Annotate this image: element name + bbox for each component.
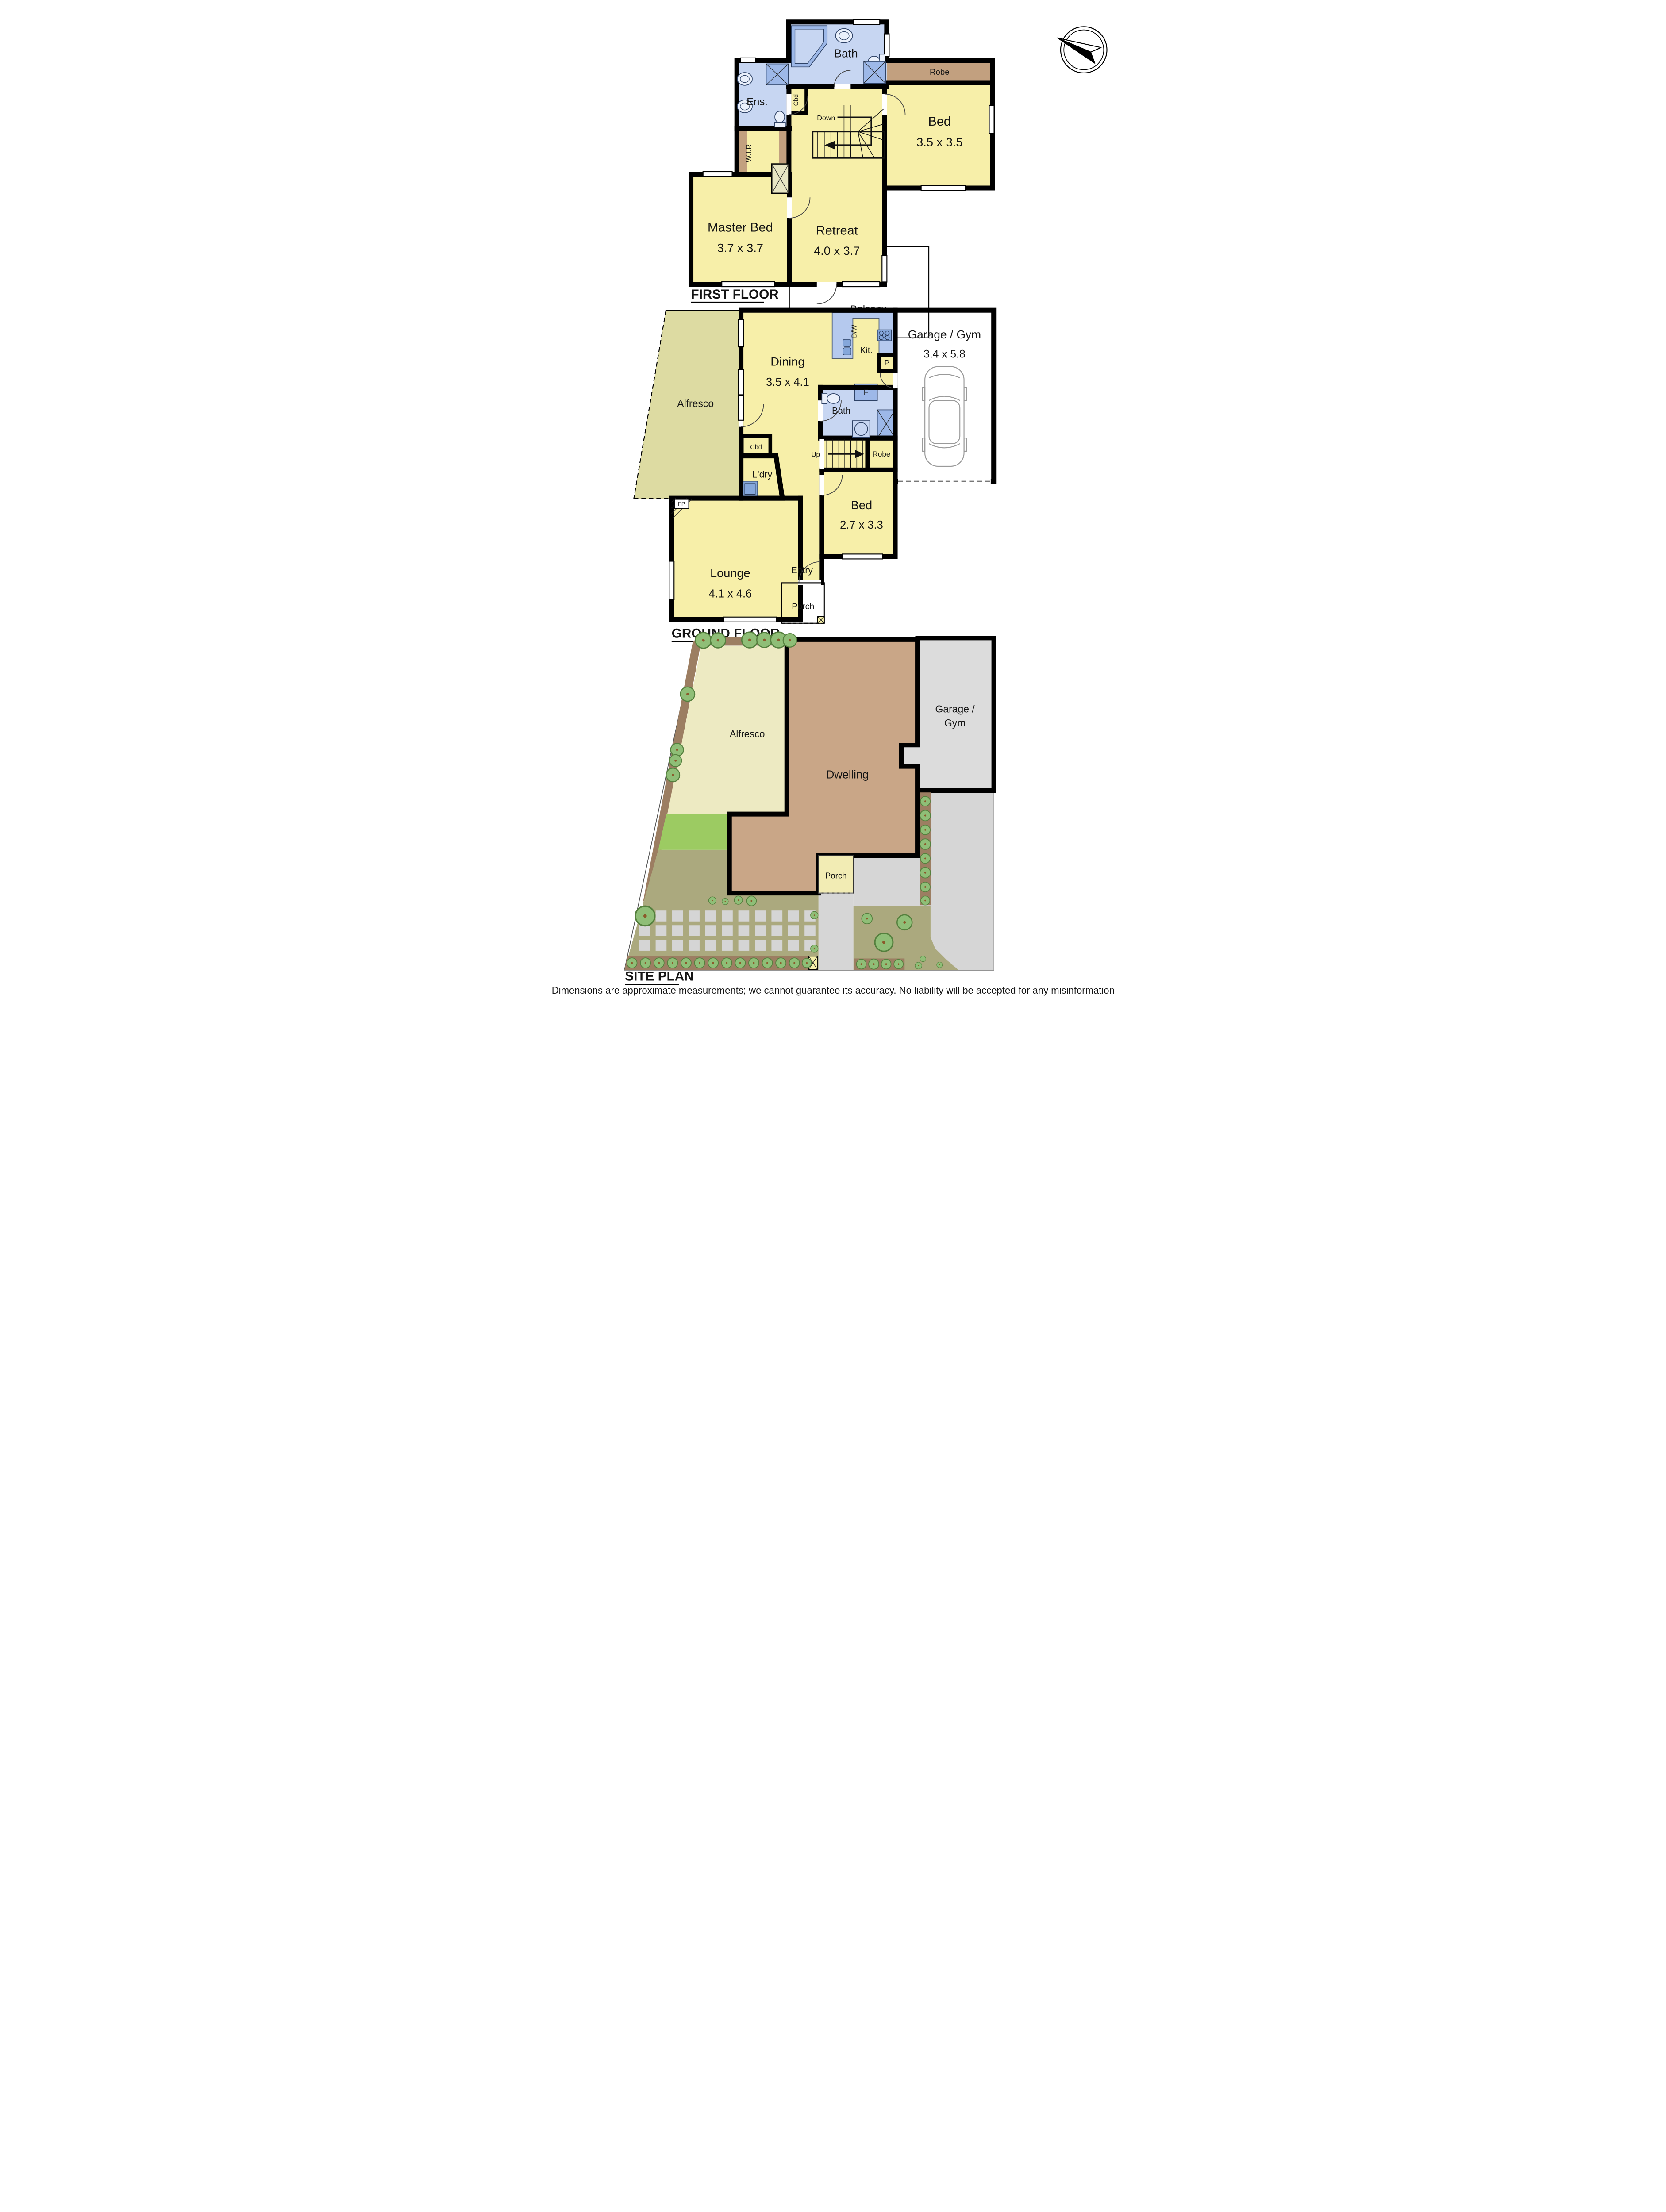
window xyxy=(739,369,743,395)
site-dwelling-label: Dwelling xyxy=(826,768,868,781)
ff-bed-dims: 3.5 x 3.5 xyxy=(916,135,962,149)
window xyxy=(739,396,743,420)
site-alfresco-label: Alfresco xyxy=(729,729,765,740)
toilet-icon xyxy=(775,111,785,123)
window xyxy=(842,282,880,287)
site-driveway xyxy=(930,791,993,970)
ff-wir-label: W.I.R xyxy=(744,144,753,163)
gf-stairs-label: Up xyxy=(811,451,820,459)
window xyxy=(669,561,674,600)
site-alfresco xyxy=(667,646,786,814)
gf-cbd-label: Cbd xyxy=(750,444,762,451)
first-floor-title: FIRST FLOOR xyxy=(691,287,778,302)
gf-bed-label: Bed xyxy=(850,498,872,512)
window xyxy=(921,185,965,190)
ff-ens-label: Ens. xyxy=(746,96,768,108)
window xyxy=(882,256,887,282)
site-porch-label: Porch xyxy=(825,871,846,880)
site-plan: Alfresco Dwelling Garage / Gym Porch SIT… xyxy=(624,632,994,985)
window xyxy=(989,105,994,134)
ff-wir-shelf-right xyxy=(779,131,787,163)
ff-cbd-label: Cbd xyxy=(793,94,800,106)
ff-bed-label: Bed xyxy=(928,115,950,129)
north-arrow-compass xyxy=(1057,27,1107,73)
gf-lounge-label: Lounge xyxy=(710,566,750,580)
basin-icon xyxy=(737,73,752,85)
sink-icon xyxy=(843,339,851,346)
gf-pantry-label: P xyxy=(884,358,889,367)
site-garage-label-line2: Gym xyxy=(944,717,965,729)
window xyxy=(842,554,882,559)
site-pavers xyxy=(639,910,816,951)
gf-bed-dims: 2.7 x 3.3 xyxy=(840,519,883,531)
site-garage-label-line1: Garage / xyxy=(935,703,975,715)
ff-master-label: Master Bed xyxy=(708,221,773,235)
gf-dishwasher-label: D/W xyxy=(850,324,858,338)
ff-retreat-label: Retreat xyxy=(816,223,858,238)
gf-bath-label: Bath xyxy=(832,406,850,416)
window xyxy=(703,172,732,177)
gf-alfresco-label: Alfresco xyxy=(677,398,714,409)
gf-dining-label: Dining xyxy=(770,355,804,369)
ff-master-dims: 3.7 x 3.7 xyxy=(717,241,763,254)
toilet-icon xyxy=(822,393,827,404)
gf-fridge-label: F xyxy=(863,388,868,396)
ff-balcony-door xyxy=(816,284,836,304)
window xyxy=(853,19,879,24)
gf-laundry-label: L'dry xyxy=(752,469,772,480)
window xyxy=(722,282,774,287)
site-plan-title: SITE PLAN xyxy=(625,969,693,984)
ff-retreat-dims: 4.0 x 3.7 xyxy=(814,244,860,257)
disclaimer: Dimensions are approximate measurements;… xyxy=(551,985,1114,996)
gf-porch-label: Porch xyxy=(792,602,814,611)
gf-lounge-dims: 4.1 x 4.6 xyxy=(708,588,752,600)
site-garden-bed-bottom xyxy=(624,956,817,970)
car-icon xyxy=(922,367,966,466)
ground-floor-plan: Up FP Dining 3.5 x 4.1 D/W Kit. xyxy=(634,310,993,641)
window xyxy=(884,34,889,56)
basin-icon xyxy=(835,29,852,43)
gf-fireplace-label: FP xyxy=(678,501,685,507)
sink-icon xyxy=(843,348,851,355)
floorplan-page: Down Bath Ens. Robe Bed 3.5 x 3.5 W.I.R … xyxy=(479,0,1187,1001)
gf-kitchen-label: Kit. xyxy=(860,346,872,355)
gf-entry-label: Entry xyxy=(791,565,813,576)
floorplan-image: Down Bath Ens. Robe Bed 3.5 x 3.5 W.I.R … xyxy=(479,0,1187,1001)
window xyxy=(723,617,776,622)
gf-garage-label: Garage / Gym xyxy=(908,328,981,341)
ff-stairs-label: Down xyxy=(817,114,835,122)
window xyxy=(740,58,755,63)
site-lawn xyxy=(658,814,729,850)
gf-robe-label: Robe xyxy=(872,450,890,458)
ff-bath-label: Bath xyxy=(834,47,858,60)
ff-robe-label: Robe xyxy=(929,67,949,77)
site-walkway xyxy=(818,893,853,970)
first-floor-plan: Down Bath Ens. Robe Bed 3.5 x 3.5 W.I.R … xyxy=(691,19,994,338)
window xyxy=(739,319,743,347)
gf-dining-dims: 3.5 x 4.1 xyxy=(766,376,809,388)
gf-garage-dims: 3.4 x 5.8 xyxy=(923,348,965,360)
